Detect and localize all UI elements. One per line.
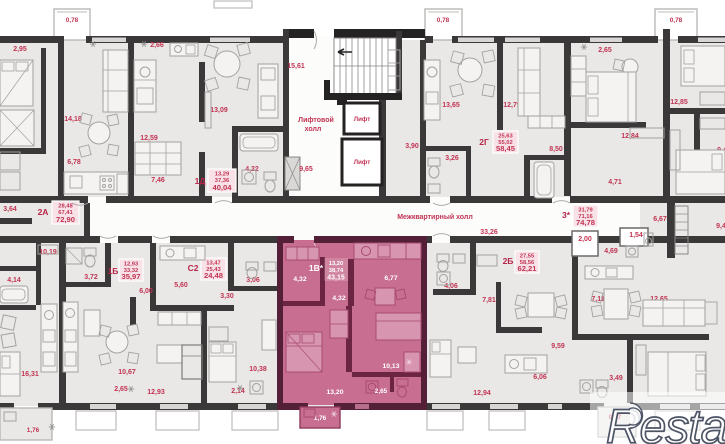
svg-text:35,97: 35,97 (121, 272, 140, 281)
svg-text:С2: С2 (188, 263, 199, 273)
svg-text:1,76: 1,76 (314, 415, 327, 422)
svg-text:38,74: 38,74 (329, 268, 344, 274)
svg-text:Restate: Restate (606, 401, 725, 444)
svg-text:3,72: 3,72 (84, 274, 98, 281)
svg-text:4,32: 4,32 (332, 295, 345, 302)
svg-text:27,55: 27,55 (520, 254, 535, 260)
svg-text:4,06: 4,06 (444, 283, 458, 290)
svg-text:8,50: 8,50 (549, 146, 563, 153)
svg-text:Лифт: Лифт (354, 116, 371, 123)
svg-text:9,65: 9,65 (299, 166, 313, 173)
svg-text:72,90: 72,90 (56, 215, 75, 224)
svg-text:5,60: 5,60 (174, 282, 188, 289)
svg-text:58,45: 58,45 (496, 144, 516, 153)
svg-text:13,20: 13,20 (329, 261, 344, 267)
svg-text:1,54: 1,54 (629, 232, 643, 239)
svg-text:1Д: 1Д (195, 176, 206, 186)
svg-text:12,93: 12,93 (147, 389, 165, 396)
svg-text:2Б: 2Б (503, 256, 514, 266)
svg-text:4,69: 4,69 (604, 248, 618, 255)
svg-text:1Б: 1Б (108, 266, 119, 276)
svg-text:2,66: 2,66 (150, 42, 164, 49)
svg-text:3,26: 3,26 (445, 155, 459, 162)
svg-text:3,90: 3,90 (405, 143, 419, 150)
svg-text:4,32: 4,32 (293, 276, 306, 283)
svg-text:12,85: 12,85 (670, 99, 688, 106)
svg-text:13,65: 13,65 (442, 102, 460, 109)
svg-text:7,11: 7,11 (591, 296, 604, 303)
svg-text:Межквартирный холл: Межквартирный холл (397, 213, 473, 221)
svg-text:16,31: 16,31 (21, 371, 39, 378)
svg-text:4,71: 4,71 (608, 179, 622, 186)
svg-text:4,14: 4,14 (7, 277, 21, 284)
svg-text:2,14: 2,14 (231, 388, 245, 395)
svg-text:25,63: 25,63 (498, 134, 513, 140)
svg-text:13,29: 13,29 (215, 172, 230, 178)
svg-text:3,64: 3,64 (3, 206, 17, 213)
svg-text:13,47: 13,47 (206, 261, 221, 267)
svg-text:31,79: 31,79 (578, 208, 593, 214)
svg-text:15,61: 15,61 (287, 63, 305, 70)
svg-text:7,81: 7,81 (482, 297, 496, 304)
svg-text:14,18: 14,18 (64, 116, 82, 123)
svg-text:10,67: 10,67 (118, 369, 136, 376)
svg-text:3*: 3* (562, 210, 571, 220)
svg-text:13,09: 13,09 (210, 107, 228, 114)
svg-text:0,78: 0,78 (437, 17, 450, 24)
svg-text:1,76: 1,76 (27, 427, 40, 434)
svg-text:28,48: 28,48 (58, 204, 73, 210)
svg-text:6,67: 6,67 (653, 216, 667, 223)
svg-text:12,94: 12,94 (473, 390, 491, 397)
svg-text:9,4: 9,4 (716, 223, 725, 230)
svg-text:6,77: 6,77 (384, 275, 397, 282)
svg-text:43,15: 43,15 (327, 275, 345, 282)
svg-text:40,04: 40,04 (212, 183, 232, 192)
svg-text:10,19: 10,19 (39, 249, 57, 256)
svg-text:10,13: 10,13 (382, 363, 399, 370)
svg-text:2А: 2А (38, 207, 49, 217)
svg-text:74,78: 74,78 (576, 218, 595, 227)
svg-text:0,78: 0,78 (670, 17, 683, 24)
svg-text:2,65: 2,65 (114, 386, 128, 393)
svg-text:3,30: 3,30 (220, 293, 234, 300)
svg-text:2,65: 2,65 (375, 388, 388, 395)
svg-text:0,78: 0,78 (66, 17, 79, 24)
svg-text:7,46: 7,46 (151, 177, 165, 184)
svg-text:Лифтовой: Лифтовой (298, 116, 334, 124)
svg-text:12,93: 12,93 (124, 262, 139, 268)
svg-text:1В*: 1В* (309, 263, 324, 273)
svg-text:6,00: 6,00 (139, 288, 153, 295)
svg-text:холл: холл (305, 126, 322, 133)
svg-text:6,78: 6,78 (67, 159, 81, 166)
svg-text:24,48: 24,48 (204, 271, 223, 280)
svg-text:10,38: 10,38 (249, 366, 267, 373)
svg-text:62,21: 62,21 (517, 264, 537, 273)
svg-text:3,49: 3,49 (609, 375, 623, 382)
svg-text:2Г: 2Г (479, 137, 489, 147)
svg-text:13,20: 13,20 (326, 389, 343, 396)
svg-text:6,06: 6,06 (533, 374, 547, 381)
svg-text:2,95: 2,95 (13, 46, 27, 53)
svg-text:Лифт: Лифт (354, 159, 371, 166)
svg-text:12,59: 12,59 (140, 135, 158, 142)
svg-text:9,59: 9,59 (551, 343, 565, 350)
svg-text:2,65: 2,65 (598, 47, 612, 54)
svg-text:33,26: 33,26 (480, 229, 498, 236)
svg-text:2,00: 2,00 (578, 236, 592, 243)
